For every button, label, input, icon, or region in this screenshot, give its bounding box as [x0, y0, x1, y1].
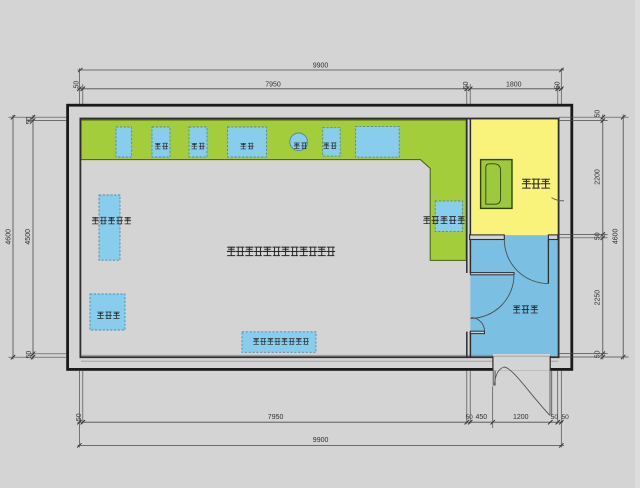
svg-text:50: 50	[594, 110, 601, 118]
svg-text:7950: 7950	[268, 414, 284, 421]
svg-text:50: 50	[551, 414, 559, 421]
svg-text:2200: 2200	[594, 169, 601, 185]
svg-text:4600: 4600	[5, 229, 12, 245]
svg-text:450: 450	[475, 414, 487, 421]
svg-text:1800: 1800	[506, 82, 522, 89]
svg-text:50: 50	[562, 414, 570, 421]
svg-text:7950: 7950	[265, 82, 281, 89]
svg-text:4500: 4500	[25, 229, 32, 245]
svg-text:9900: 9900	[313, 63, 329, 70]
svg-text:4600: 4600	[613, 229, 620, 245]
svg-text:2250: 2250	[594, 290, 601, 306]
svg-text:9900: 9900	[313, 437, 329, 444]
svg-text:50: 50	[594, 232, 601, 240]
svg-text:1200: 1200	[513, 414, 529, 421]
